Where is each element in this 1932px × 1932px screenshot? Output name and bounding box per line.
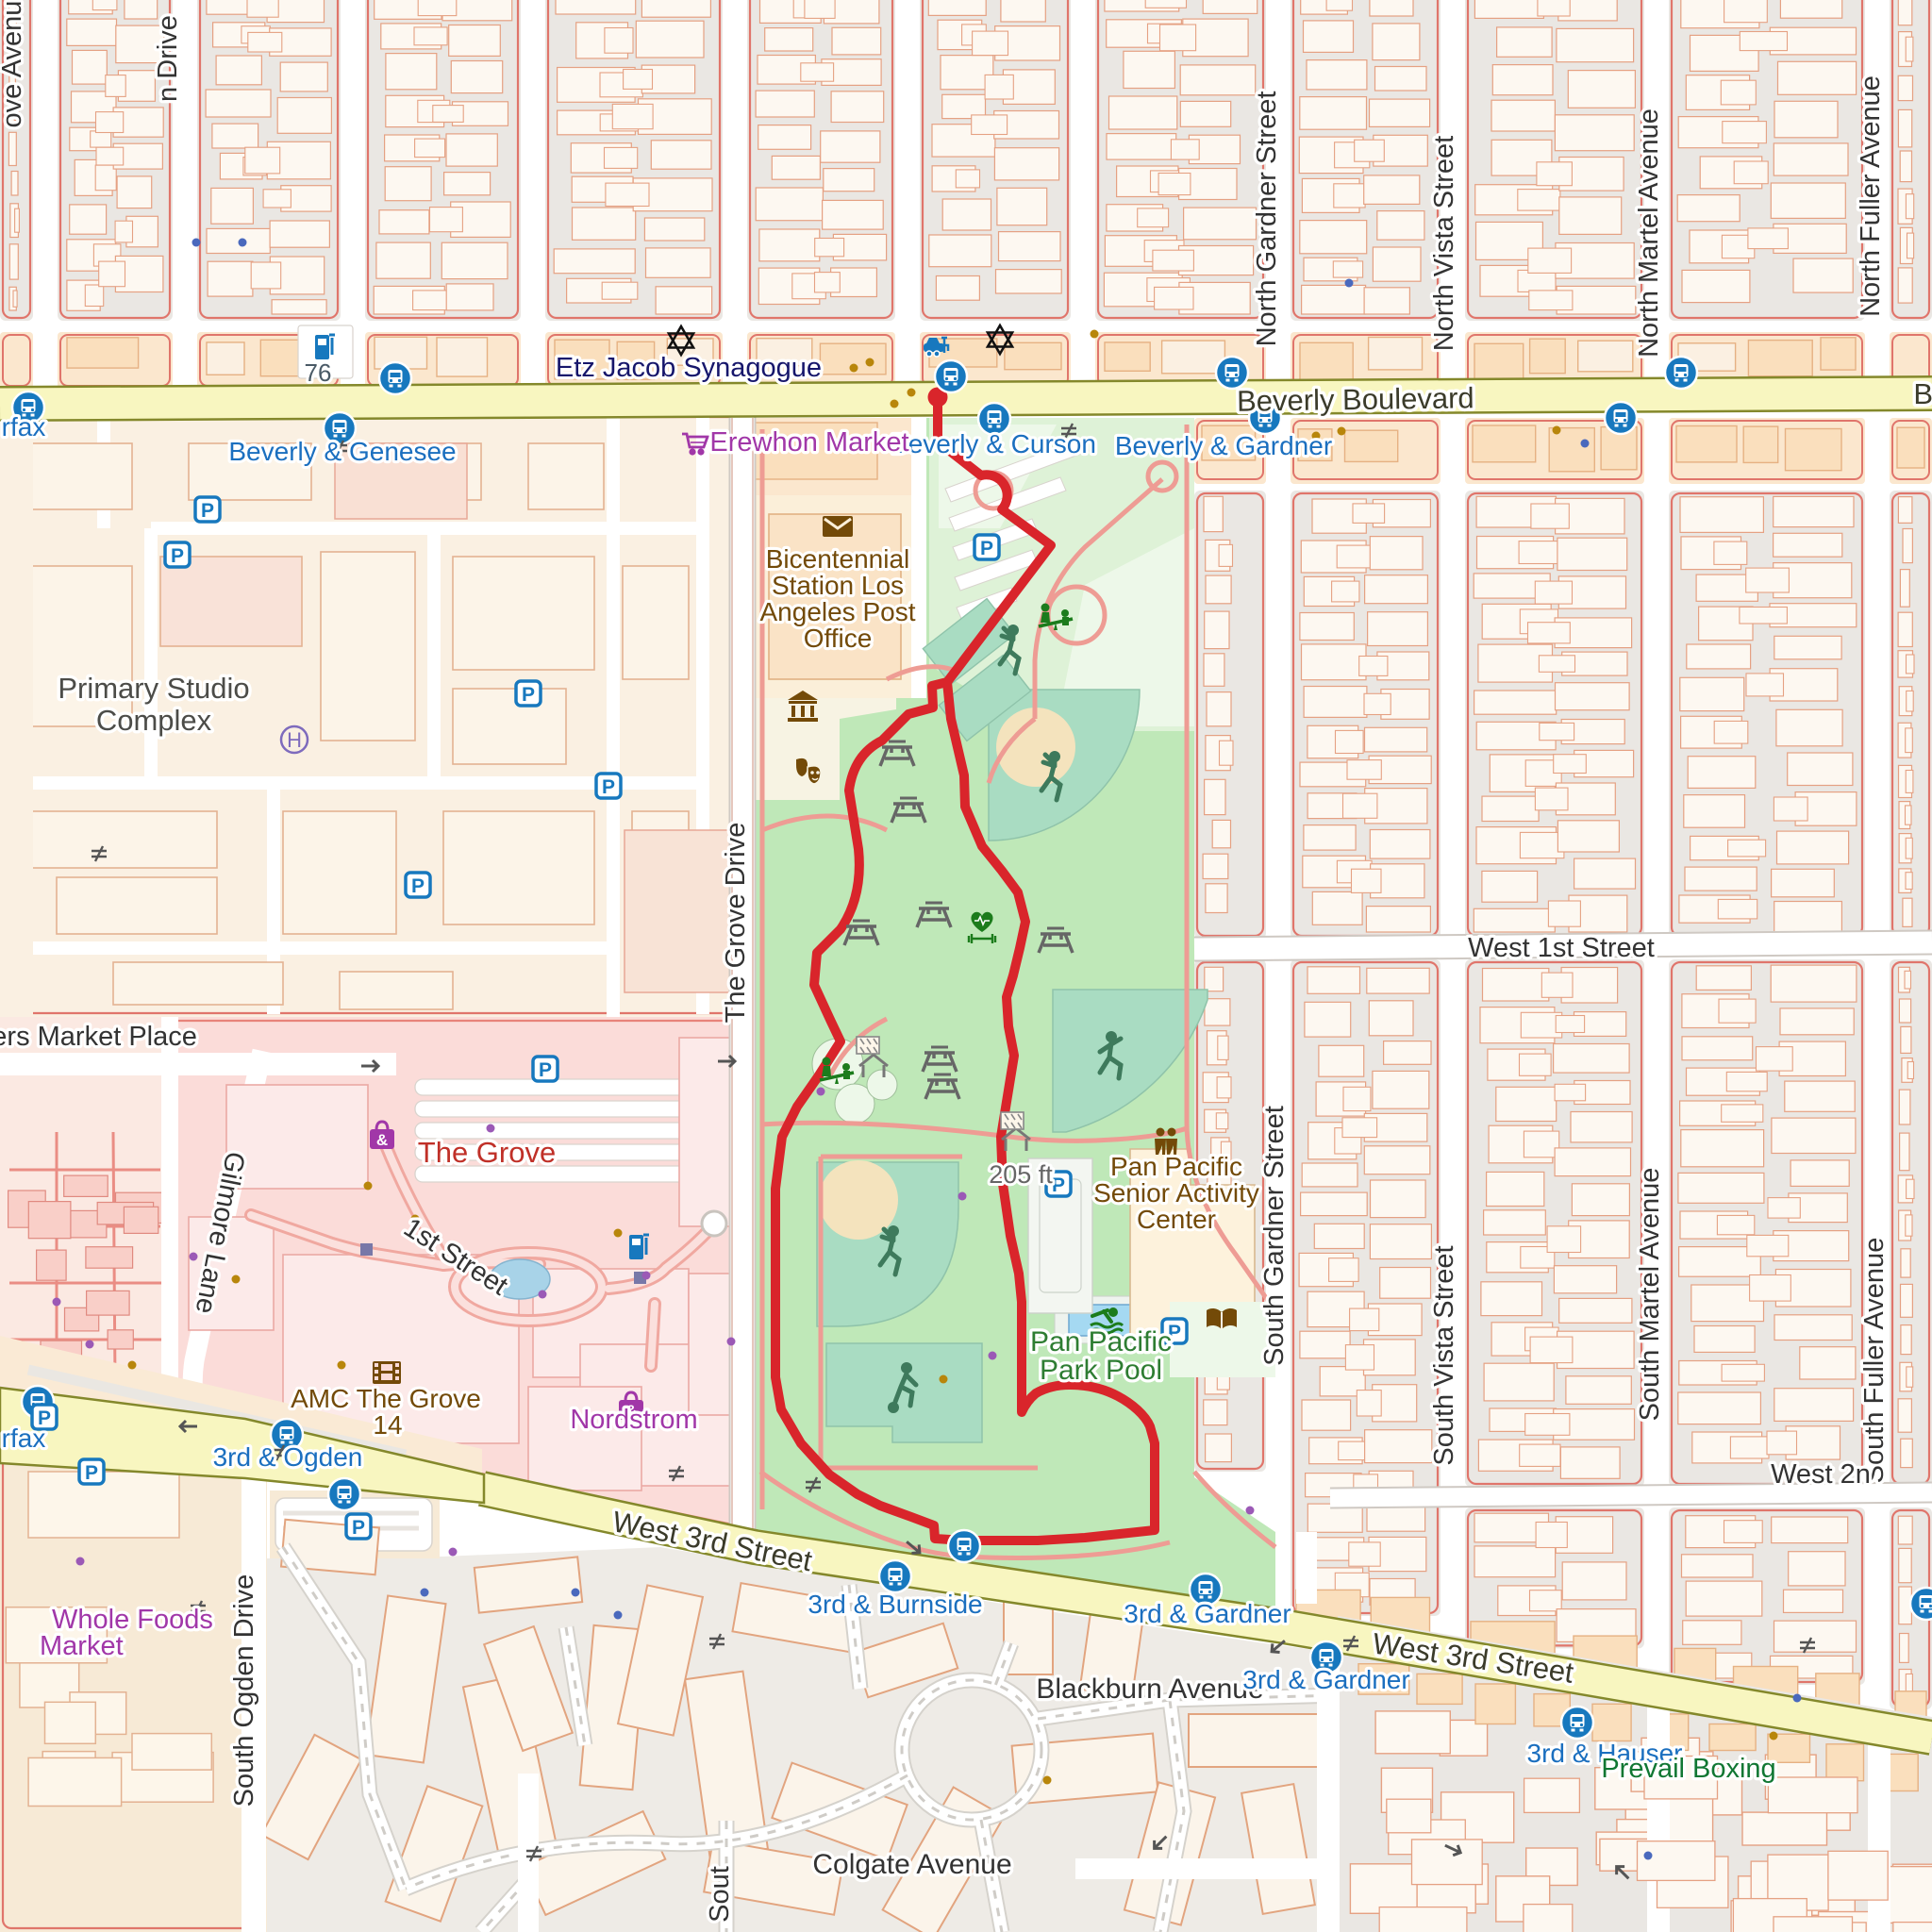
svg-text:P: P [411, 875, 425, 897]
svg-text:P: P [85, 1462, 98, 1484]
svg-text:The Grove: The Grove [418, 1136, 556, 1169]
svg-text:Market: Market [40, 1631, 124, 1661]
svg-text:rfax: rfax [2, 412, 46, 441]
svg-text:14: 14 [373, 1410, 402, 1440]
svg-text:P: P [602, 776, 615, 798]
svg-text:Colgate Avenue: Colgate Avenue [812, 1849, 1011, 1880]
svg-text:Angeles Post: Angeles Post [760, 597, 916, 626]
svg-text:Pan Pacific: Pan Pacific [1110, 1152, 1242, 1181]
svg-text:76: 76 [305, 358, 332, 387]
svg-text:mers Market Place: mers Market Place [0, 1022, 197, 1052]
svg-text:P: P [980, 538, 993, 559]
svg-text:P: P [1052, 1174, 1065, 1196]
svg-text:AMC The Grove: AMC The Grove [291, 1384, 481, 1413]
svg-text:South Ogden Drive: South Ogden Drive [229, 1574, 259, 1807]
svg-text:Erewhon Market: Erewhon Market [709, 427, 908, 458]
svg-text:205 ft: 205 ft [989, 1160, 1053, 1189]
svg-text:ove Avenue: ove Avenue [0, 0, 27, 128]
svg-text:Office: Office [804, 624, 873, 653]
svg-text:Beverly: Beverly [1913, 377, 1932, 410]
svg-text:P: P [522, 684, 535, 706]
svg-text:Senior Activity: Senior Activity [1093, 1178, 1259, 1207]
svg-text:North Gardner Street: North Gardner Street [1252, 92, 1282, 347]
svg-text:South Martel Avenue: South Martel Avenue [1635, 1168, 1665, 1422]
svg-text:Center: Center [1137, 1205, 1216, 1234]
svg-text:rfax: rfax [2, 1424, 46, 1453]
svg-text:P: P [352, 1517, 365, 1539]
svg-text:3rd & Burnside: 3rd & Burnside [808, 1590, 982, 1619]
svg-text:North Fuller Avenue: North Fuller Avenue [1856, 75, 1886, 317]
svg-text:West 2n: West 2n [1771, 1459, 1871, 1490]
svg-text:3rd & Gardner: 3rd & Gardner [1242, 1665, 1409, 1694]
svg-text:&: & [376, 1131, 388, 1149]
svg-text:West 1st Street: West 1st Street [1468, 933, 1655, 963]
svg-text:Complex: Complex [96, 704, 212, 737]
svg-text:P: P [171, 545, 184, 567]
svg-text:North Vista Street: North Vista Street [1429, 136, 1459, 351]
svg-text:South Fuller Avenue: South Fuller Avenue [1859, 1238, 1890, 1484]
svg-text:3rd & Gardner: 3rd & Gardner [1124, 1599, 1291, 1628]
svg-text:Sout: Sout [705, 1866, 735, 1923]
svg-text:Nordstrom: Nordstrom [570, 1405, 697, 1435]
svg-text:Prevail Boxing: Prevail Boxing [1601, 1754, 1775, 1784]
svg-text:South Vista Street: South Vista Street [1429, 1245, 1459, 1465]
svg-text:Blackburn Avenue: Blackburn Avenue [1036, 1674, 1263, 1705]
svg-text:Station Los: Station Los [772, 571, 904, 600]
svg-text:South Gardner Street: South Gardner Street [1259, 1106, 1290, 1366]
svg-text:P: P [201, 500, 214, 522]
svg-text:H: H [287, 728, 302, 752]
svg-text:P: P [539, 1059, 552, 1081]
svg-text:Beverly & Genesee: Beverly & Genesee [228, 437, 456, 466]
svg-text:Park Pool: Park Pool [1040, 1355, 1162, 1386]
svg-text:Beverly Boulevard: Beverly Boulevard [1237, 381, 1474, 418]
svg-text:North Martel Avenue: North Martel Avenue [1634, 108, 1664, 358]
svg-text:Etz Jacob Synagogue: Etz Jacob Synagogue [556, 353, 822, 383]
svg-text:Bicentennial: Bicentennial [766, 544, 910, 574]
svg-text:Pan Pacific: Pan Pacific [1030, 1326, 1172, 1357]
svg-text:n Drive: n Drive [153, 15, 183, 102]
svg-text:Beverly & Gardner: Beverly & Gardner [1115, 431, 1332, 460]
svg-text:3rd & Ogden: 3rd & Ogden [213, 1442, 363, 1472]
svg-text:Beverly & Curson: Beverly & Curson [891, 429, 1096, 458]
svg-text:The Grove Drive: The Grove Drive [721, 823, 751, 1024]
svg-text:Primary Studio: Primary Studio [58, 672, 249, 705]
